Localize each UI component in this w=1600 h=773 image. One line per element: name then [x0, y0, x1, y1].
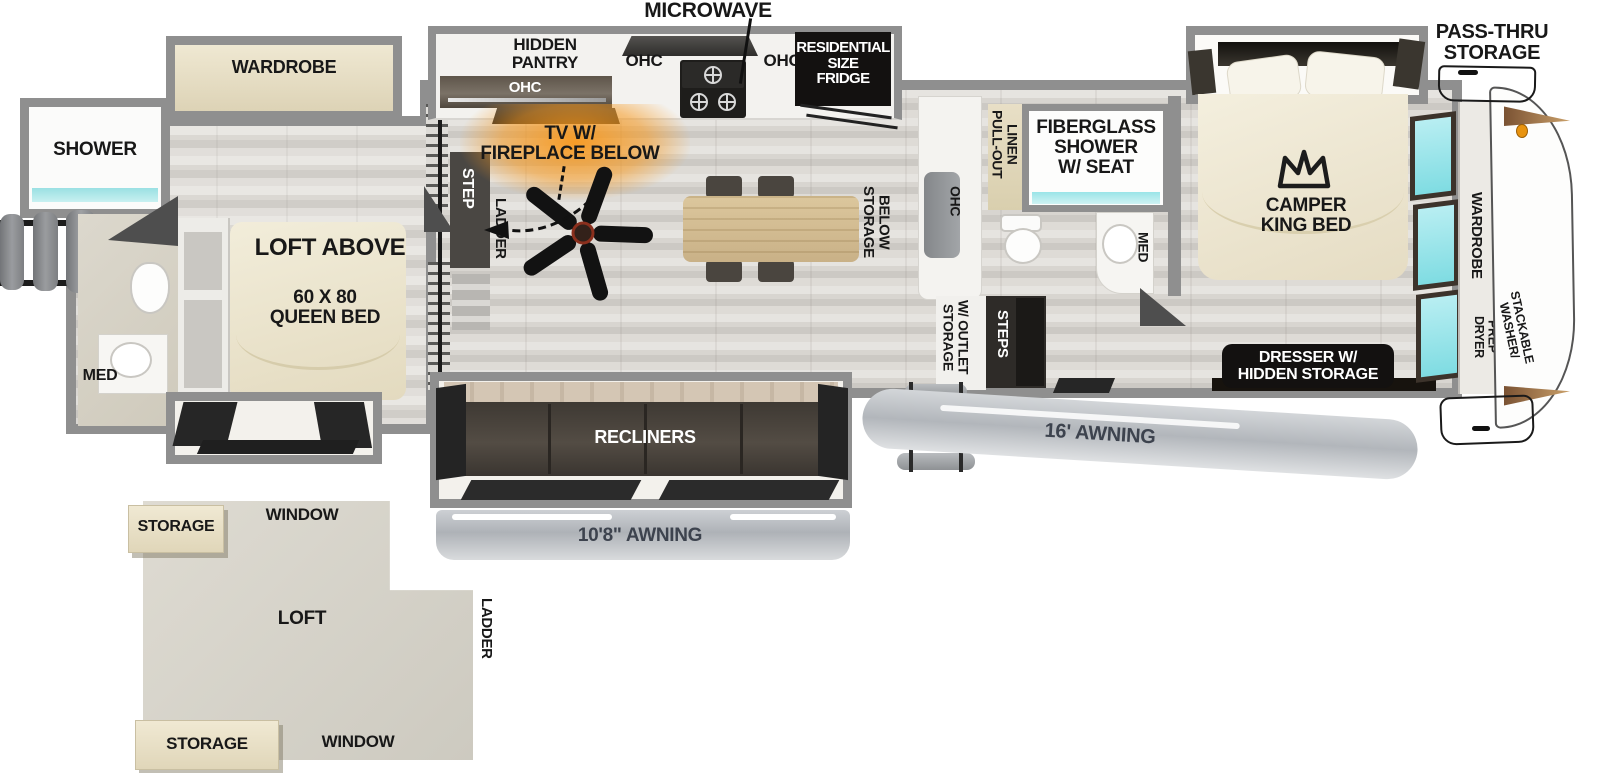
- dining-chair: [758, 260, 794, 282]
- rear-wardrobe-slide: [166, 36, 402, 120]
- fridge-label: RESIDENTIAL SIZE FRIDGE: [795, 40, 891, 87]
- dining-chair: [706, 176, 742, 198]
- recliner-footmat: [659, 480, 840, 500]
- rear-slide-mat: [197, 440, 359, 454]
- front-shower-pan: [1032, 192, 1160, 204]
- step-landing: [452, 274, 490, 330]
- front-med-label: MED: [1136, 232, 1151, 262]
- loft-ladder-label: LADDER: [478, 598, 494, 659]
- recliner-footmat: [461, 480, 642, 500]
- rear-closet-cabinet: [184, 232, 222, 290]
- loft-above-label: LOFT ABOVE: [240, 236, 420, 261]
- window-glass: [1415, 117, 1451, 195]
- window-glass: [1418, 205, 1454, 285]
- pass-thru-label: PASS-THRU STORAGE: [1412, 22, 1572, 64]
- camper-king-label: CAMPER KING BED: [1238, 196, 1374, 236]
- queen-bed-label: 60 X 80 QUEEN BED: [250, 288, 400, 328]
- rear-closet-cabinet: [184, 300, 222, 388]
- stair-rail: [438, 108, 442, 392]
- front-door-handle: [1472, 426, 1490, 431]
- dresser-label: DRESSER W/ HIDDEN STORAGE: [1222, 350, 1394, 383]
- rear-shower-label: SHOWER: [30, 140, 160, 160]
- bath-bedroom-wall: [1168, 96, 1181, 296]
- floorplan-canvas: WARDROBE SHOWER MED LOFT ABOVE 60 X 80 Q…: [0, 0, 1600, 773]
- awning-small-highlight: [452, 514, 612, 520]
- recliner-slide-window: [818, 384, 848, 480]
- loft-storage-bottom-label: STORAGE: [135, 735, 279, 753]
- dining-chair: [758, 176, 794, 198]
- loft-window-bottom-label: WINDOW: [310, 733, 406, 751]
- awning-small-label: 10'8" AWNING: [490, 526, 790, 546]
- recliners-label: RECLINERS: [545, 428, 745, 447]
- entry-door-mat: [1053, 378, 1115, 393]
- recliner-slide-window: [436, 384, 466, 480]
- loft-label: LOFT: [262, 609, 342, 629]
- rear-wardrobe-label: WARDROBE: [206, 58, 362, 77]
- dining-chair: [706, 260, 742, 282]
- rear-rack-cylinder: [0, 214, 24, 290]
- pull-out-linen-label: PULL-OUT LINEN: [990, 110, 1019, 178]
- bed-slide-panel: [1188, 49, 1216, 95]
- window-glass: [1421, 295, 1457, 377]
- front-wardrobe-label: WARDROBE: [1468, 192, 1484, 279]
- crown-icon: [1272, 146, 1336, 192]
- island-storage-label: STORAGE BELOW: [860, 186, 892, 258]
- microwave-label: MICROWAVE: [628, 0, 788, 22]
- rear-toilet: [130, 262, 170, 314]
- bedroom-window: [1410, 111, 1456, 201]
- bedroom-window: [1416, 289, 1462, 383]
- rear-med-label: MED: [70, 368, 130, 385]
- hidden-pantry-label: HIDDEN PANTRY: [470, 36, 620, 71]
- loft-window-top-label: WINDOW: [252, 506, 352, 524]
- steps-label: STEPS: [994, 310, 1010, 358]
- awning-small-highlight: [730, 514, 836, 520]
- recliners-slide-floor: [444, 382, 838, 404]
- interior-steps-panel: [1016, 298, 1044, 386]
- fiberglass-shower-label: FIBERGLASS SHOWER W/ SEAT: [1026, 118, 1166, 177]
- counter-ohc-label: OHC: [948, 186, 963, 216]
- front-toilet: [1004, 228, 1042, 264]
- front-door-outline: [1439, 394, 1535, 445]
- front-sink: [1102, 224, 1138, 264]
- front-cap: [1489, 85, 1577, 428]
- loft-storage-top-label: STORAGE: [128, 519, 224, 536]
- pass-thru-door-outline: [1438, 65, 1537, 103]
- rear-bath-floor: [78, 214, 178, 426]
- pantry-ohc-label: OHC: [490, 80, 560, 96]
- storage-outlet-label: STORAGE W/ OUTLET: [941, 300, 970, 374]
- kingpin-dot: [1516, 124, 1528, 138]
- dashed-arrow-icon: [478, 190, 598, 246]
- rear-rack-cylinder: [33, 212, 58, 291]
- dining-table: [683, 196, 859, 262]
- pass-thru-door-handle: [1458, 70, 1478, 75]
- rear-shower-pan: [32, 188, 158, 202]
- ohc-left-label: OHC: [614, 52, 674, 70]
- bedroom-window: [1413, 199, 1459, 291]
- pantry-chrome-strip: [448, 98, 606, 102]
- fan-dashed-arrow: [478, 190, 598, 246]
